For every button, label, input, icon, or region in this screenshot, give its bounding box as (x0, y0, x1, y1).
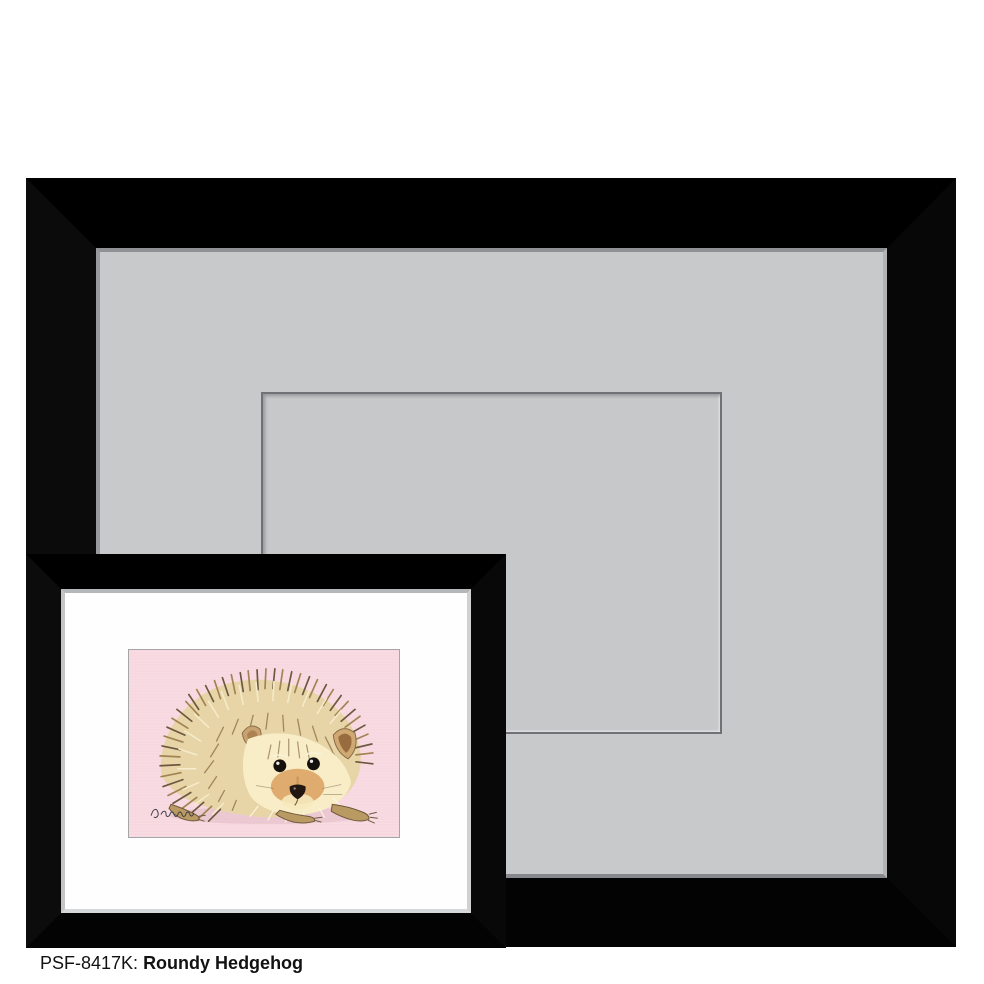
small-picture-frame (26, 554, 506, 948)
product-sku: PSF-8417K: (40, 953, 138, 973)
hedgehog-artwork (128, 649, 400, 838)
hedgehog-illustration (129, 650, 399, 837)
product-caption: PSF-8417K:Roundy Hedgehog (40, 952, 303, 974)
product-title: Roundy Hedgehog (143, 953, 303, 973)
small-frame-mat (61, 589, 471, 913)
product-mockup: PSF-8417K:Roundy Hedgehog (0, 0, 984, 984)
